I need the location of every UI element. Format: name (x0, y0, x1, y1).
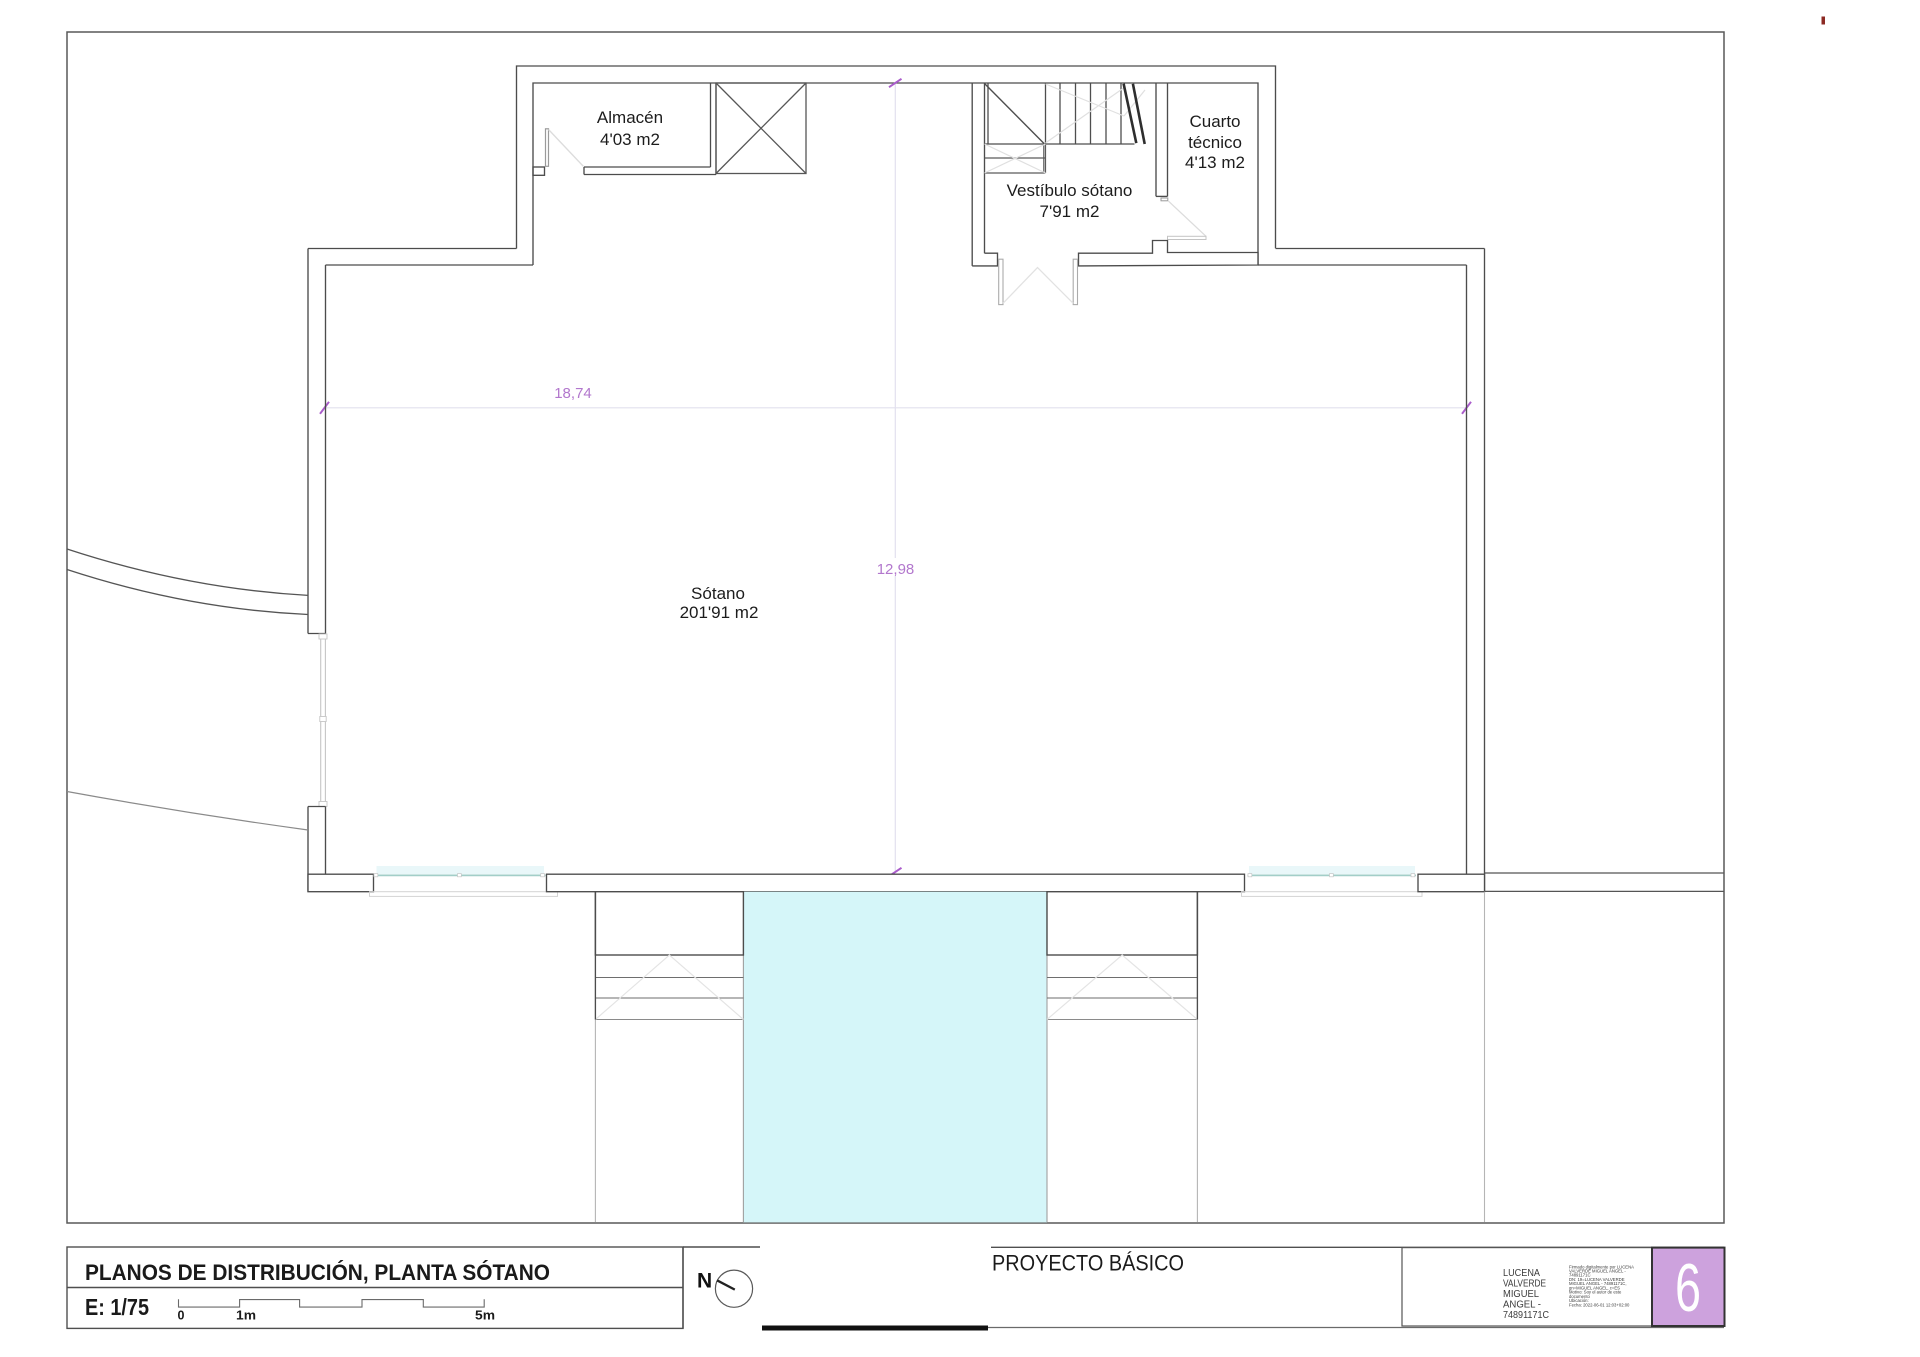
svg-text:12,98: 12,98 (877, 561, 915, 578)
svg-text:201'91 m2: 201'91 m2 (680, 603, 759, 622)
svg-text:4'03 m2: 4'03 m2 (600, 130, 660, 149)
svg-text:E: 1/75: E: 1/75 (85, 1294, 149, 1320)
svg-text:6: 6 (1675, 1250, 1701, 1326)
svg-text:técnico: técnico (1188, 133, 1242, 152)
svg-text:PROYECTO BÁSICO: PROYECTO BÁSICO (992, 1250, 1184, 1275)
svg-text:1m: 1m (236, 1309, 256, 1323)
svg-text:4'13 m2: 4'13 m2 (1185, 153, 1245, 172)
svg-text:Sótano: Sótano (691, 584, 745, 603)
svg-text:Cuarto: Cuarto (1189, 112, 1240, 131)
svg-text:18,74: 18,74 (554, 385, 592, 402)
svg-text:5m: 5m (475, 1309, 495, 1323)
svg-text:Almacén: Almacén (597, 108, 663, 127)
svg-text:0: 0 (178, 1309, 185, 1323)
svg-text:7'91 m2: 7'91 m2 (1040, 202, 1100, 221)
svg-text:PLANOS DE DISTRIBUCIÓN, PLANTA: PLANOS DE DISTRIBUCIÓN, PLANTA SÓTANO (85, 1260, 550, 1285)
svg-text:Vestíbulo sótano: Vestíbulo sótano (1007, 181, 1133, 200)
svg-text:74891171C: 74891171C (1503, 1309, 1549, 1321)
svg-text:N: N (697, 1270, 712, 1293)
svg-text:Fecha: 2022-06-01 12:03+02:00: Fecha: 2022-06-01 12:03+02:00 (1569, 1302, 1630, 1307)
